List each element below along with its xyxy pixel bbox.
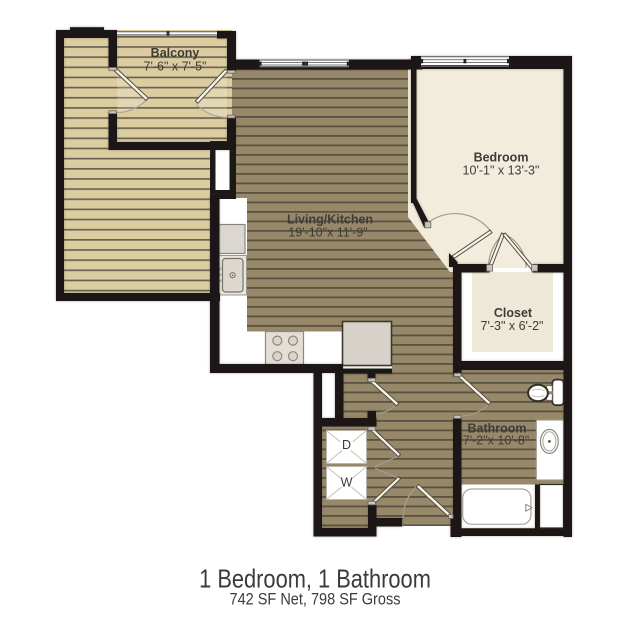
svg-text:W: W — [341, 476, 353, 490]
svg-text:7'-2"x 10'-8": 7'-2"x 10'-8" — [463, 434, 529, 448]
svg-text:742 SF Net, 798 SF Gross: 742 SF Net, 798 SF Gross — [230, 591, 401, 609]
svg-text:Bedroom: Bedroom — [474, 151, 529, 165]
svg-text:10'-1" x 13'-3": 10'-1" x 13'-3" — [463, 164, 540, 178]
svg-text:1 Bedroom, 1 Bathroom: 1 Bedroom, 1 Bathroom — [199, 565, 431, 594]
svg-text:Living/Kitchen: Living/Kitchen — [287, 213, 373, 227]
svg-text:D: D — [342, 438, 351, 452]
svg-text:7'-3" x 6'-2": 7'-3" x 6'-2" — [481, 319, 544, 333]
svg-text:19'-10"x 11'-9": 19'-10"x 11'-9" — [288, 226, 367, 240]
svg-text:Closet: Closet — [494, 306, 533, 320]
svg-text:7'-6" x 7'-5": 7'-6" x 7'-5" — [144, 60, 207, 74]
svg-text:Balcony: Balcony — [151, 46, 200, 60]
